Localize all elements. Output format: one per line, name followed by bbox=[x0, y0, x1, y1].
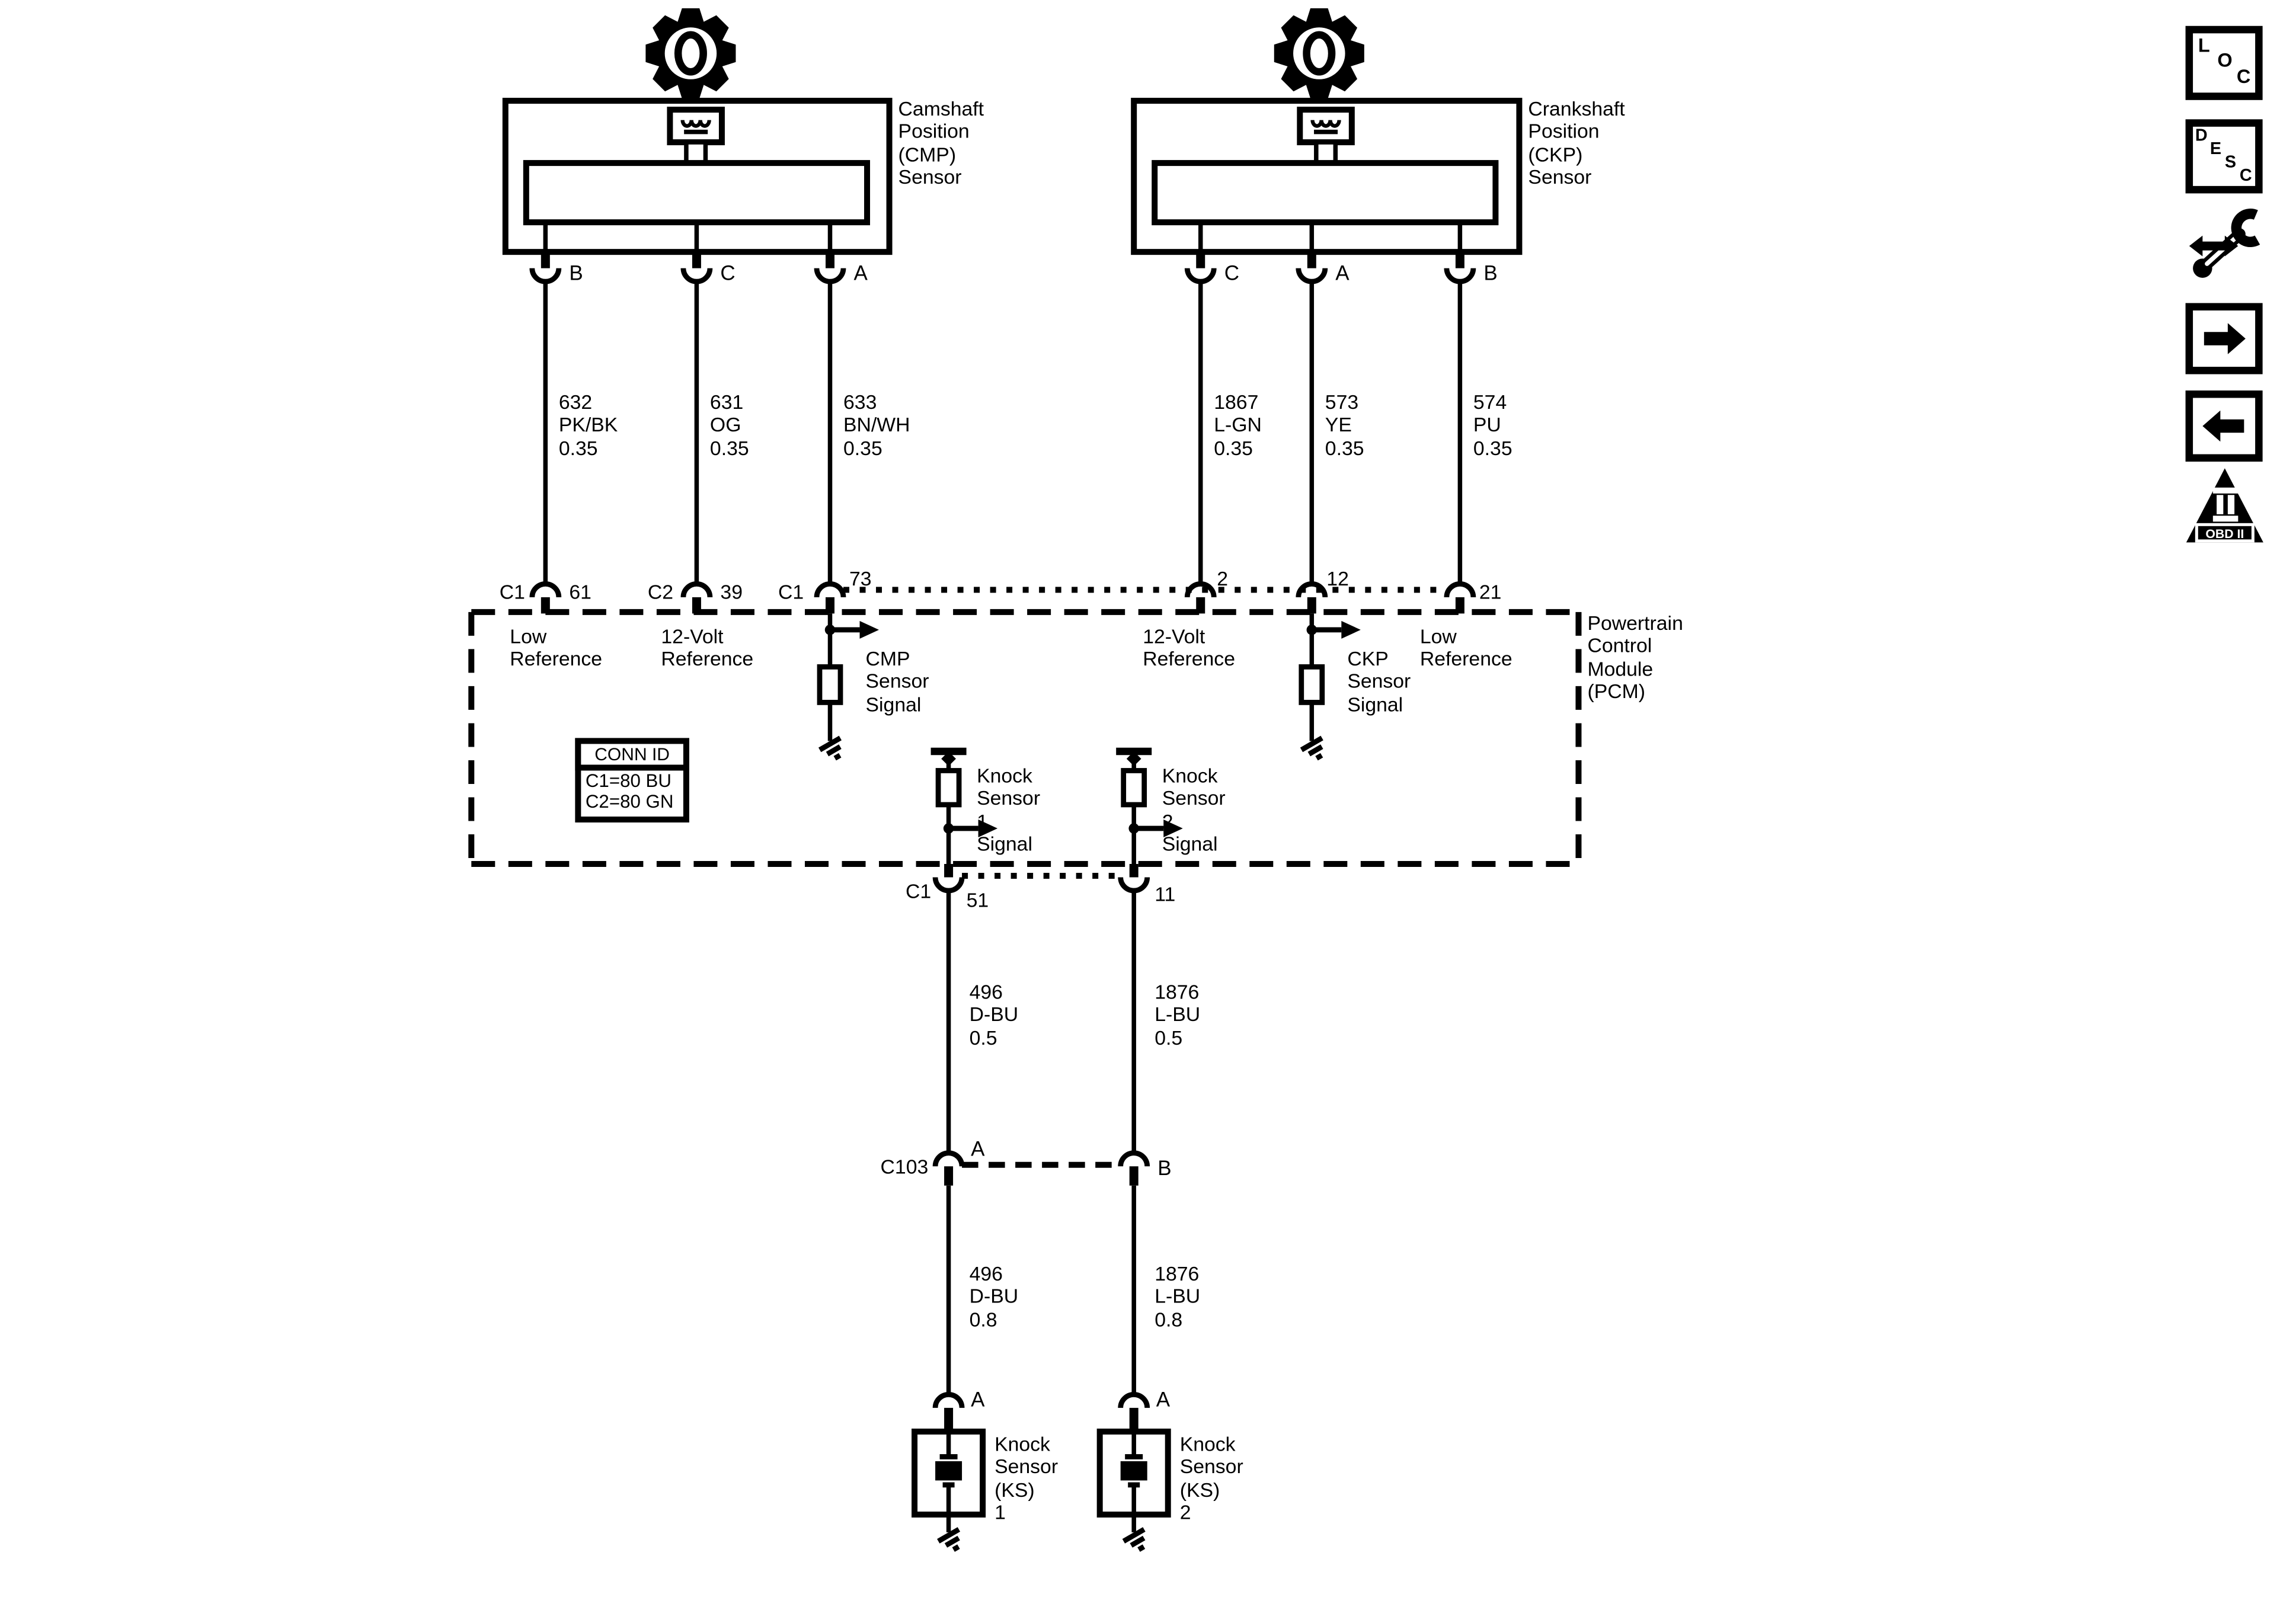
c103-connector bbox=[935, 1153, 1147, 1395]
pcm-pin-12: 12 bbox=[1326, 568, 1349, 590]
pcm-pin-21: 21 bbox=[1479, 581, 1502, 603]
wire-label-496-08: 496 D-BU 0.8 bbox=[970, 1263, 1019, 1330]
c103-pin-b: B bbox=[1157, 1157, 1171, 1181]
wire-label-633: 633 BN/WH 0.35 bbox=[843, 391, 910, 459]
ckp-signal-arrow-icon bbox=[1341, 621, 1361, 639]
pcm-pin-39: 39 bbox=[720, 581, 743, 603]
loc-letter-l: L bbox=[2198, 34, 2210, 57]
wire-label-631: 631 OG 0.35 bbox=[710, 391, 749, 459]
pcm-pin-73: 73 bbox=[849, 568, 872, 590]
cmp-resistor bbox=[820, 667, 840, 702]
pcm-pin-51: 51 bbox=[967, 889, 989, 912]
pcm-pin-11: 11 bbox=[1155, 884, 1175, 906]
fn-low-reference-right: Low Reference bbox=[1420, 625, 1512, 670]
crankshaft-gear-icon bbox=[1274, 8, 1364, 98]
knock2-resistor bbox=[1124, 770, 1144, 805]
ks1-pin-a: A bbox=[971, 1388, 984, 1412]
sensor-harness-wires bbox=[545, 281, 1460, 584]
wire-label-496-05: 496 D-BU 0.5 bbox=[970, 981, 1019, 1049]
ckp-resistor bbox=[1302, 667, 1322, 702]
ks1-ground-icon bbox=[938, 1529, 966, 1554]
loc-letter-o: O bbox=[2217, 49, 2232, 72]
pcm-pin-61: 61 bbox=[569, 581, 591, 603]
cmp-pin-b: B bbox=[569, 263, 583, 286]
wire-label-574: 574 PU 0.35 bbox=[1473, 391, 1512, 459]
ckp-ground-icon bbox=[1302, 738, 1329, 763]
desc-letter-s: S bbox=[2225, 154, 2236, 172]
pcm-conn-c1b-label: C1 bbox=[778, 581, 804, 603]
obd2-icon[interactable]: OBD II bbox=[2186, 468, 2263, 542]
cmp-ground-icon bbox=[820, 738, 848, 763]
pcm-conn-c1-label: C1 bbox=[500, 581, 525, 603]
pcm-pin-2: 2 bbox=[1217, 568, 1228, 590]
conn-id-title: CONN ID bbox=[578, 742, 686, 768]
arrow-right-icon[interactable] bbox=[2189, 307, 2259, 371]
knock1-resistor bbox=[938, 770, 959, 805]
fn-knock2-signal: Knock Sensor 2 Signal bbox=[1162, 764, 1226, 855]
cmp-pin-a: A bbox=[854, 263, 868, 286]
desc-letter-d: D bbox=[2195, 127, 2208, 145]
fn-cmp-sensor-signal: CMP Sensor Signal bbox=[866, 648, 929, 715]
arrow-left-icon[interactable] bbox=[2189, 394, 2259, 458]
desc-letter-e: E bbox=[2210, 141, 2221, 159]
wire-label-1876-05: 1876 L-BU 0.5 bbox=[1155, 981, 1200, 1049]
knock-sensor-2-box bbox=[1100, 1432, 1168, 1554]
wire-label-1876-08: 1876 L-BU 0.8 bbox=[1155, 1263, 1200, 1330]
c103-label: C103 bbox=[881, 1156, 929, 1179]
fn-knock1-signal: Knock Sensor 1 Signal bbox=[977, 764, 1040, 855]
cmp-signal-arrow-icon bbox=[860, 621, 880, 639]
loc-letter-c: C bbox=[2237, 65, 2250, 88]
ks2-ground-icon bbox=[1124, 1529, 1152, 1554]
cmp-sensor-title: Camshaft Position (CMP) Sensor bbox=[898, 98, 984, 188]
c103-pin-a: A bbox=[971, 1138, 984, 1162]
fn-12v-reference-left: 12-Volt Reference bbox=[661, 625, 753, 670]
cmp-pin-c: C bbox=[720, 263, 735, 286]
wire-label-632: 632 PK/BK 0.35 bbox=[559, 391, 618, 459]
ks2-pin-a: A bbox=[1156, 1388, 1170, 1412]
wire-label-573: 573 YE 0.35 bbox=[1325, 391, 1364, 459]
fn-ckp-sensor-signal: CKP Sensor Signal bbox=[1347, 648, 1411, 715]
cmp-sensor-box bbox=[506, 101, 890, 252]
ks2-title: Knock Sensor (KS) 2 bbox=[1180, 1433, 1243, 1523]
conn-id-c2: C2=80 GN bbox=[586, 793, 674, 813]
conn-id-c1: C1=80 BU bbox=[586, 772, 671, 792]
wire-label-1867: 1867 L-GN 0.35 bbox=[1214, 391, 1262, 459]
ckp-sensor-title: Crankshaft Position (CKP) Sensor bbox=[1528, 98, 1625, 188]
fn-low-reference-left: Low Reference bbox=[510, 625, 602, 670]
ks1-title: Knock Sensor (KS) 1 bbox=[994, 1433, 1058, 1523]
wrench-arrow-icon[interactable] bbox=[2189, 214, 2257, 278]
camshaft-gear-icon bbox=[645, 8, 736, 98]
knock-sensor-pin-terminals bbox=[935, 1394, 1147, 1435]
wiring-diagram-page: OBD II Camshaft Position (CMP) Sensor Cr… bbox=[0, 0, 2296, 1609]
ckp-pin-b: B bbox=[1483, 263, 1497, 286]
diagram-linework: OBD II bbox=[0, 0, 2296, 1609]
fn-12v-reference-right: 12-Volt Reference bbox=[1143, 625, 1235, 670]
ckp-pin-a: A bbox=[1335, 263, 1349, 286]
pcm-title: Powertrain Control Module (PCM) bbox=[1587, 612, 1683, 703]
obd2-label: OBD II bbox=[2205, 527, 2244, 541]
knock-sensor-1-box bbox=[914, 1432, 983, 1554]
desc-letter-c: C bbox=[2240, 168, 2252, 185]
pcm-conn-c1c-label: C1 bbox=[906, 881, 931, 903]
ckp-sensor-box bbox=[1134, 101, 1519, 252]
ckp-pin-c: C bbox=[1224, 263, 1239, 286]
pcm-conn-c2-label: C2 bbox=[648, 581, 673, 603]
